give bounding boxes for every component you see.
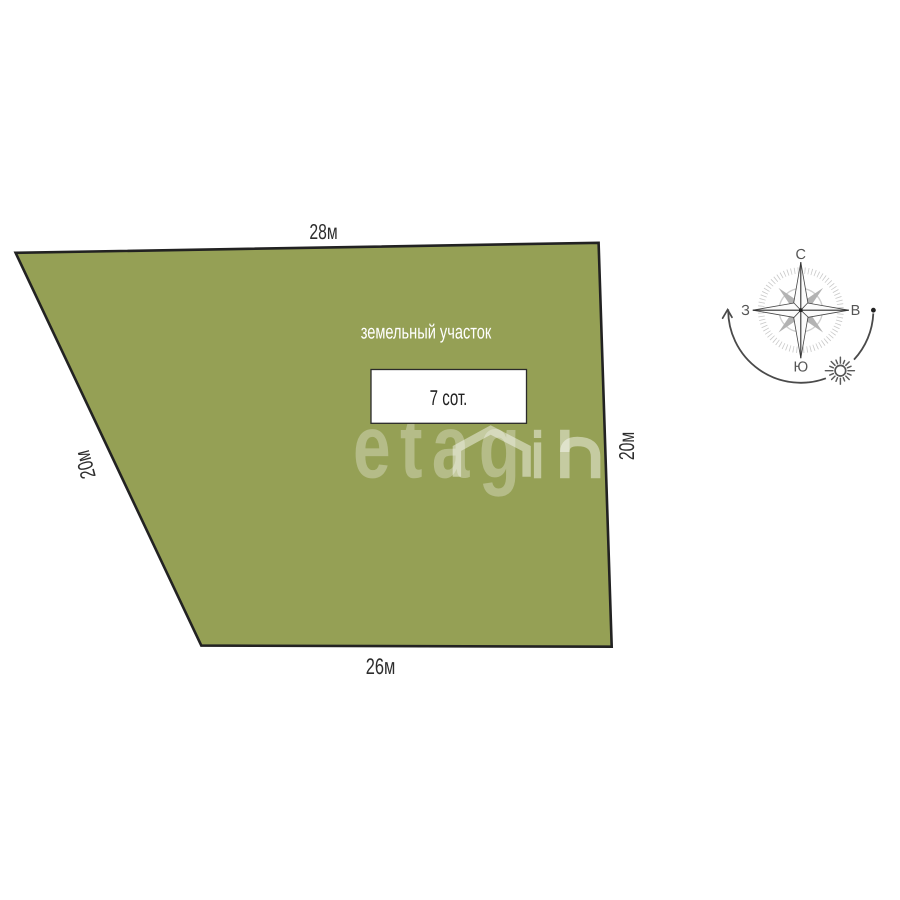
svg-text:7 сот.: 7 сот. (430, 386, 468, 410)
svg-text:20м: 20м (615, 432, 639, 460)
svg-text:В: В (851, 303, 861, 319)
svg-text:З: З (741, 303, 750, 319)
svg-text:Ю: Ю (793, 360, 808, 376)
svg-text:26м: 26м (366, 654, 396, 679)
svg-text:28м: 28м (309, 220, 337, 244)
svg-text:земельный участок: земельный участок (361, 322, 492, 344)
svg-text:С: С (796, 247, 806, 263)
